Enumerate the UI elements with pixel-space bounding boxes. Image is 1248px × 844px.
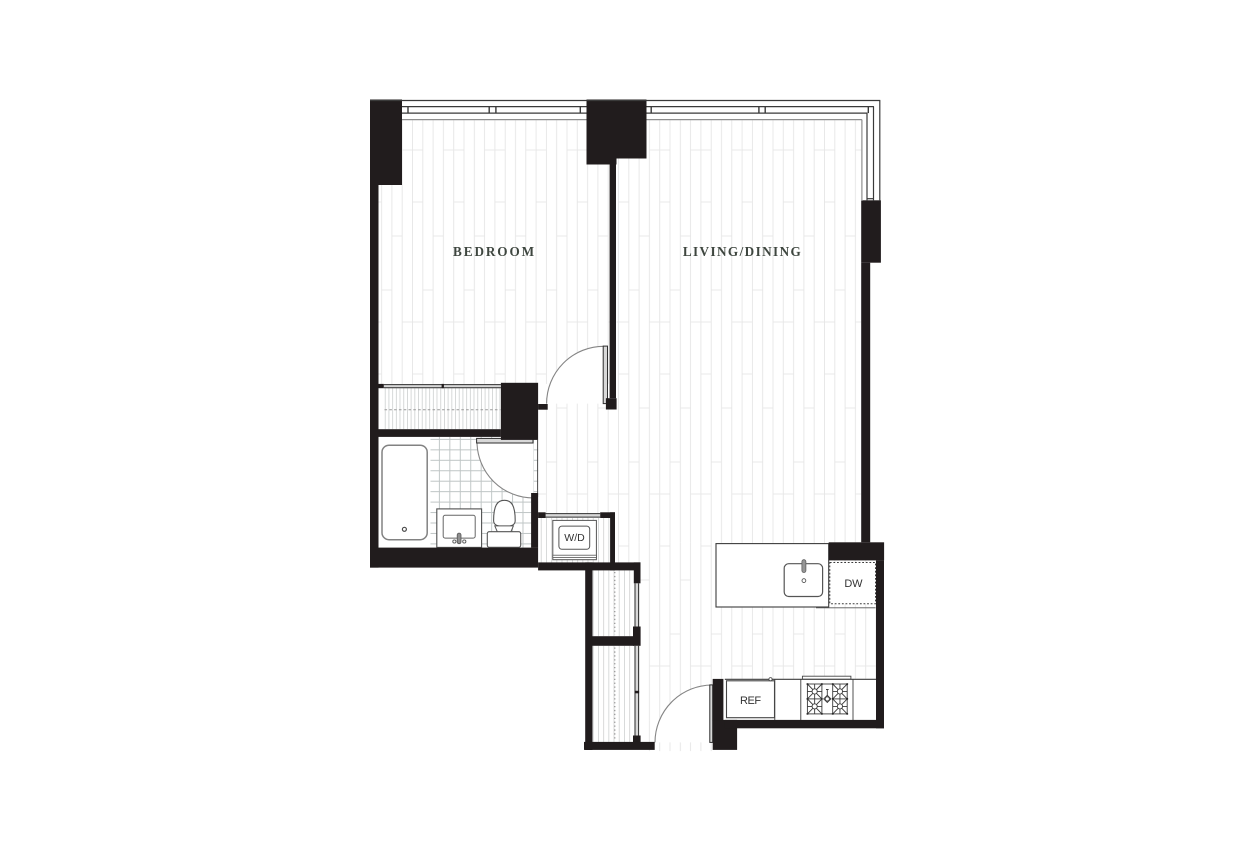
svg-text:LIVING/DINING: LIVING/DINING [683,244,802,259]
svg-text:REF: REF [740,695,761,707]
svg-text:BEDROOM: BEDROOM [453,244,536,259]
svg-text:W/D: W/D [564,532,585,544]
svg-text:DW: DW [844,578,863,590]
